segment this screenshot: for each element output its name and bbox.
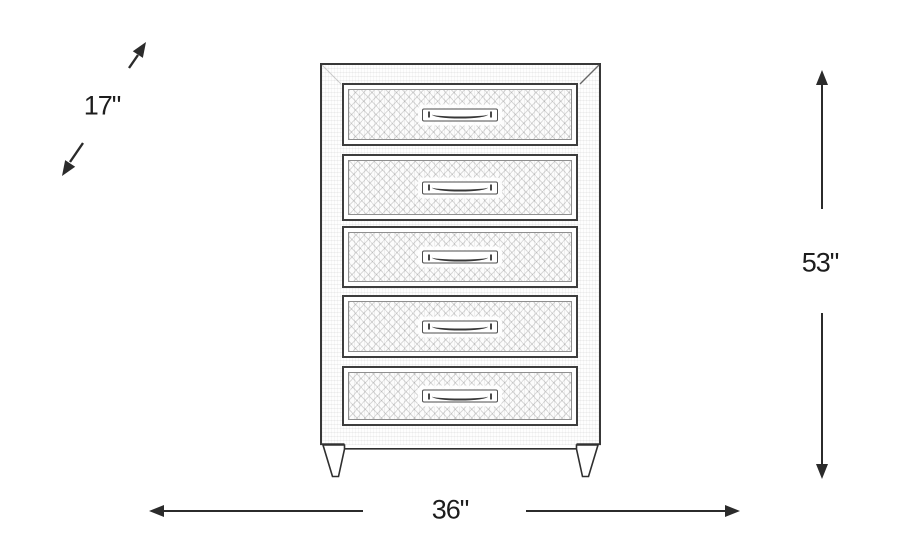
width-arrow-right — [526, 505, 740, 517]
arrowhead-icon — [57, 160, 75, 179]
top-corner-line-left — [322, 65, 341, 84]
depth-dimension-label: 17" — [84, 91, 121, 122]
dimension-diagram: 17" 53" 36" — [0, 0, 900, 550]
width-arrow-left — [149, 505, 363, 517]
depth-arrow-lower — [57, 143, 83, 179]
depth-arrow-upper — [129, 39, 151, 68]
arrowhead-icon — [725, 505, 740, 517]
top-corner-line-right — [580, 65, 599, 84]
height-dimension-label: 53" — [802, 248, 839, 279]
chest-leg-right — [577, 445, 599, 477]
arrowhead-icon — [816, 464, 828, 479]
height-arrow-upper — [816, 70, 828, 209]
diagram-overlay — [0, 0, 900, 550]
arrowhead-icon — [149, 505, 164, 517]
chest-leg-left — [323, 445, 345, 477]
height-arrow-lower — [816, 313, 828, 479]
arrowhead-icon — [816, 70, 828, 85]
width-dimension-label: 36" — [432, 495, 469, 526]
arrowhead-icon — [133, 39, 151, 58]
